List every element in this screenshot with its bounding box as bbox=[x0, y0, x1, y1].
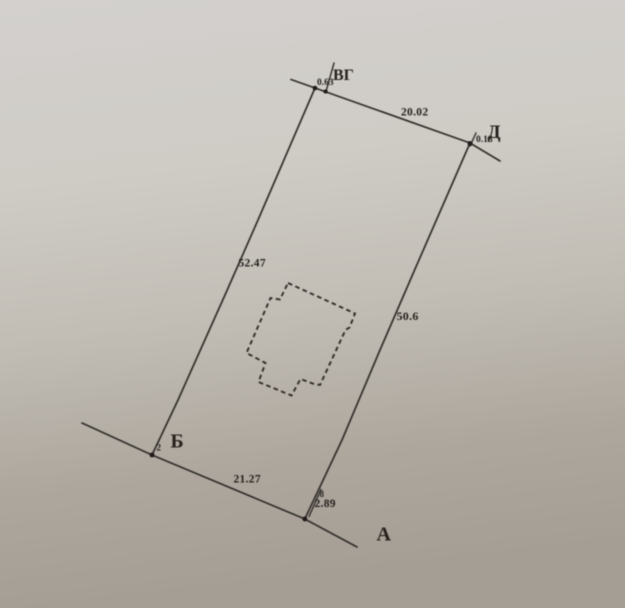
svg-text:2.89: 2.89 bbox=[315, 498, 336, 510]
svg-text:А: А bbox=[377, 524, 392, 546]
svg-text:20.02: 20.02 bbox=[401, 107, 428, 119]
svg-text:50.6: 50.6 bbox=[397, 309, 419, 323]
svg-text:2: 2 bbox=[157, 443, 162, 453]
svg-text:21.27: 21.27 bbox=[234, 474, 261, 486]
svg-text:Б: Б bbox=[171, 431, 184, 453]
svg-text:52.47: 52.47 bbox=[239, 258, 266, 270]
svg-text:ВГ: ВГ bbox=[333, 67, 354, 84]
svg-text:0.18: 0.18 bbox=[476, 135, 493, 145]
svg-text:0.63: 0.63 bbox=[317, 78, 334, 88]
